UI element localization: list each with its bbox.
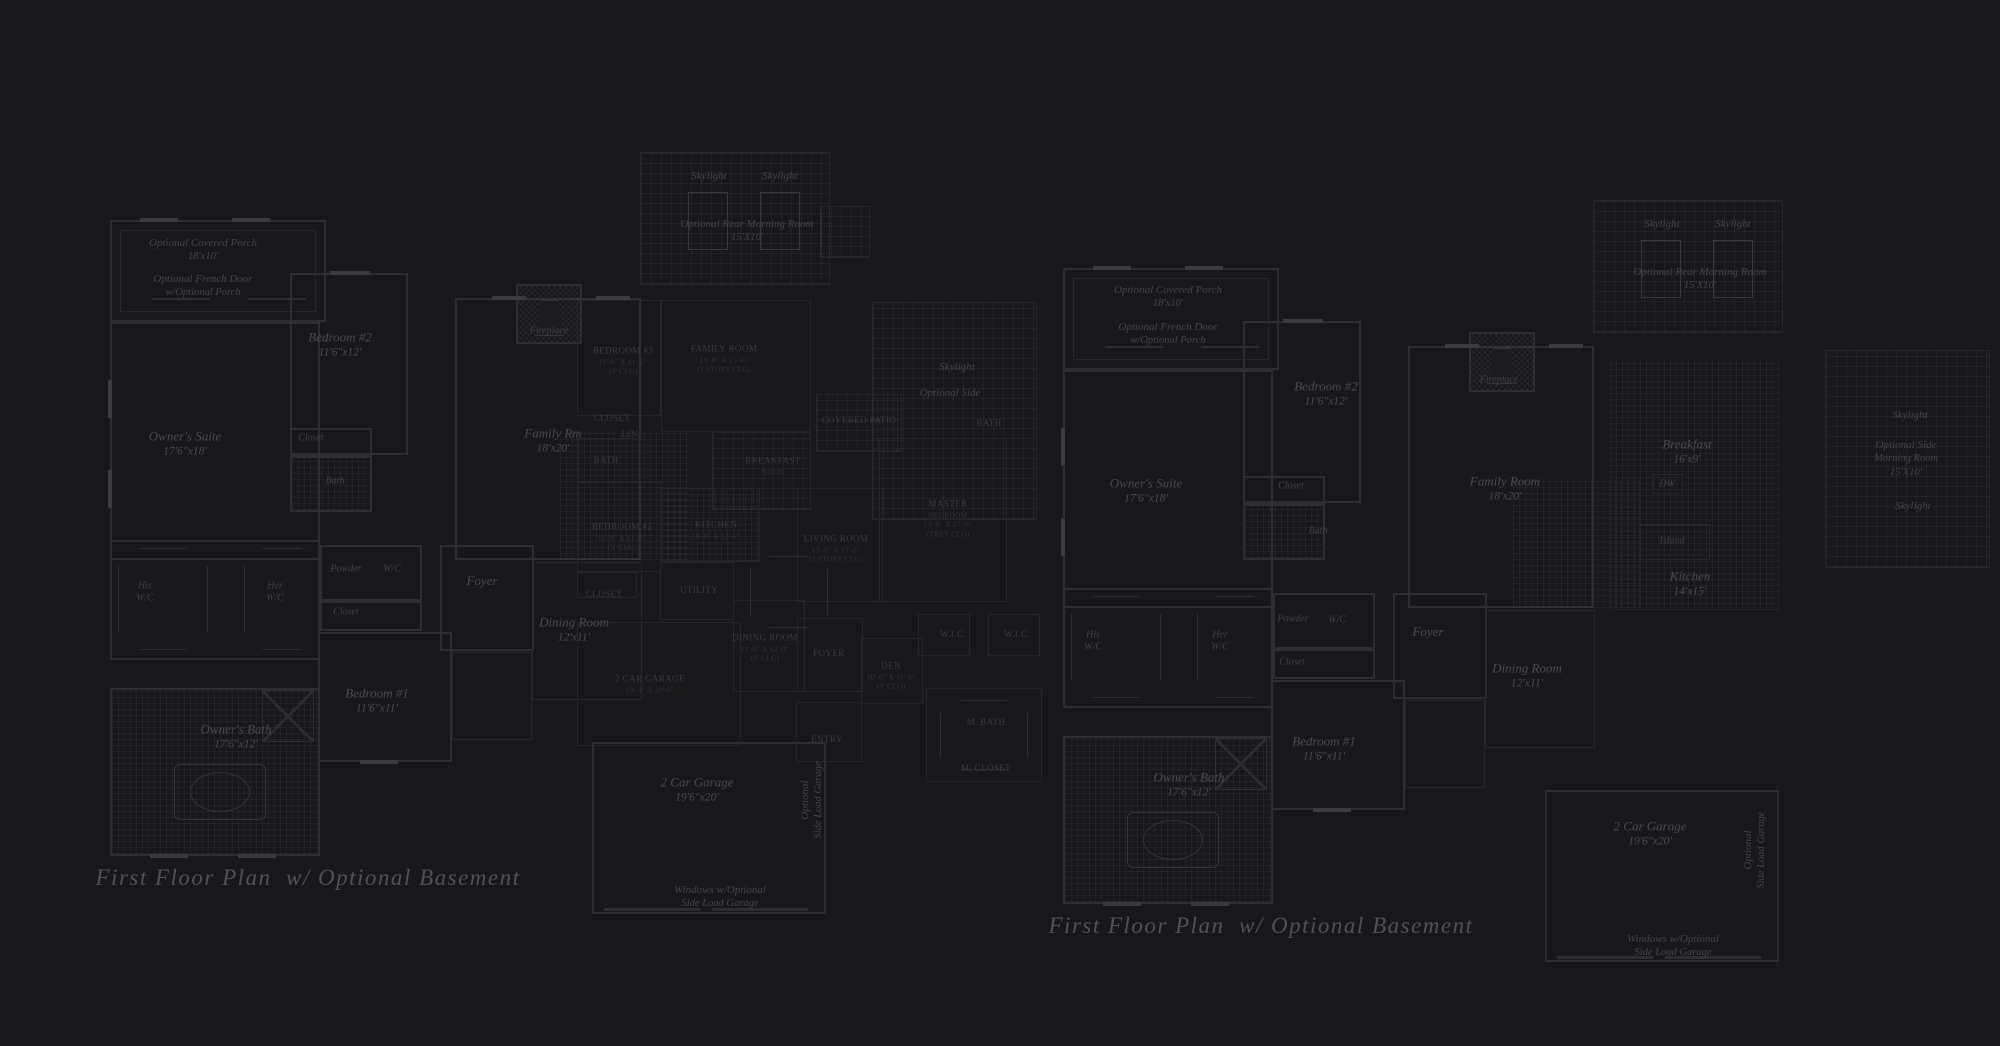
right-floor-plan-bedroom-2: Bedroom #211'6"x12' xyxy=(1294,379,1357,410)
right-floor-plan-her-wic: HerW/C xyxy=(1211,630,1229,653)
middle-floor-plan-bedroom-3: BEDROOM #311'-0" X 11'-6"(9' CLG) xyxy=(593,345,653,376)
middle-floor-plan-wic-left: W.I.C. xyxy=(940,629,966,641)
right-floor-plan-wic: W/C xyxy=(1328,614,1346,626)
right-floor-plan-foyer: Foyer xyxy=(1412,624,1443,640)
left-floor-plan-fireplace: Fireplace xyxy=(530,325,569,337)
blueprint-canvas: First Floor Plan w/ Optional Basement Fi… xyxy=(0,0,2000,1046)
right-floor-plan-skylight-side-top: Skylight xyxy=(1892,408,1927,422)
linework xyxy=(1103,902,1141,906)
right-floor-plan-fireplace: Fireplace xyxy=(1480,374,1519,386)
right-floor-plan-family-room: Family Room18'x20' xyxy=(1470,474,1540,505)
right-floor-plan-owners-bath: Owner's Bath17'6"x12' xyxy=(1153,770,1224,801)
left-plan-caption: First Floor Plan w/ Optional Basement xyxy=(96,865,521,891)
middle-floor-plan-foyer: FOYER xyxy=(813,648,845,660)
middle-floor-plan-living-room: LIVING ROOM13'-6" X 17'-6"(2 STORY CLG) xyxy=(804,533,869,564)
left-floor-plan-optional-covered-porch: Optional Covered Porch18'x10' xyxy=(149,236,257,264)
left-floor-plan-wic: W/C xyxy=(383,563,401,575)
left-floor-plan-closet-bedroom2: Closet xyxy=(298,432,324,444)
middle-floor-plan-kitchen: KITCHEN10'-0" X 12'-0" xyxy=(692,519,741,540)
right-floor-plan-closet-hall: Closet xyxy=(1279,656,1305,668)
left-floor-plan-optional-french-door: Optional French Doorw/Optional Porch xyxy=(153,272,252,300)
left-floor-plan-foyer: Foyer xyxy=(466,573,497,589)
left-floor-plan-skylight-side: Skylight xyxy=(939,360,974,374)
left-floor-plan-his-wic: HisW/C xyxy=(136,581,154,604)
linework xyxy=(1197,596,1273,698)
linework xyxy=(1143,820,1203,860)
right-floor-plan-owners-suite: Owner's Suite17'6"x18' xyxy=(1110,476,1182,507)
middle-floor-plan-garage: 2 CAR GARAGE19'-4" X 20'-0" xyxy=(615,673,685,694)
middle-floor-plan-closet-lower: CLOSET xyxy=(586,589,622,601)
left-floor-plan-her-wic: HerW/C xyxy=(266,581,284,604)
linework xyxy=(1393,593,1487,699)
linework xyxy=(1185,266,1223,270)
right-floor-plan-dw: DW xyxy=(1659,478,1675,490)
linework xyxy=(1061,428,1065,466)
left-floor-plan-bedroom-1: Bedroom #111'6"x11' xyxy=(345,686,408,717)
left-floor-plan-garage: 2 Car Garage19'6"x20' xyxy=(661,775,734,806)
right-floor-plan-bedroom-1: Bedroom #111'6"x11' xyxy=(1292,734,1355,765)
left-floor-plan-skylight-rear-right: Skylight xyxy=(762,169,797,183)
middle-floor-plan-dining-room: DINING ROOM11'-0" X 12'-0"(9' CLG) xyxy=(732,632,798,663)
right-floor-plan-bath-bedroom2: Bath xyxy=(1309,525,1328,537)
middle-floor-plan-breakfast-nook: BREAKFASTNOOK xyxy=(745,455,800,476)
left-floor-plan-bedroom-2: Bedroom #211'6"x12' xyxy=(308,330,371,361)
right-floor-plan-kitchen: Kitchen14'x15' xyxy=(1670,569,1710,600)
right-floor-plan-his-wic: HisW/C xyxy=(1084,630,1102,653)
right-plan-caption: First Floor Plan w/ Optional Basement xyxy=(1049,913,1474,939)
right-floor-plan-closet-bedroom2: Closet xyxy=(1278,480,1304,492)
right-floor-plan-breakfast: Breakfast16'x9' xyxy=(1662,437,1711,468)
left-floor-plan-closet-hall: Closet xyxy=(333,606,359,618)
middle-floor-plan-linen: LIN. xyxy=(622,429,641,441)
right-floor-plan-windows-w-optional: Windows w/OptionalSide Load Garage xyxy=(1627,932,1719,960)
right-floor-plan-skylight-rear-left: Skylight xyxy=(1644,217,1679,231)
right-floor-plan-optional-covered-porch: Optional Covered Porch18'x10' xyxy=(1114,283,1222,311)
linework xyxy=(1405,700,1485,788)
middle-floor-plan-den: DEN10'-0" X 11'-0"(9' CLG) xyxy=(867,660,915,691)
right-floor-plan-dining-room: Dining Room12'x11' xyxy=(1492,661,1562,692)
left-floor-plan-windows-w-optional: Windows w/OptionalSide Load Garage xyxy=(674,883,766,911)
right-floor-plan-skylight-side-bottom: Skylight xyxy=(1895,499,1930,513)
linework xyxy=(1283,319,1323,323)
left-floor-plan-powder: Powder xyxy=(330,563,361,575)
middle-floor-plan-bedroom-2: BEDROOM #211'-0" X 11'-0"(9' CLG) xyxy=(592,521,652,552)
middle-floor-plan-entry: ENTRY xyxy=(811,734,843,746)
right-floor-plan-skylight-rear-right: Skylight xyxy=(1715,217,1750,231)
linework xyxy=(1093,266,1131,270)
left-floor-plan-owners-bath: Owner's Bath17'6"x12' xyxy=(200,722,271,753)
right-floor-plan-powder: Powder xyxy=(1277,613,1308,625)
linework xyxy=(1061,518,1065,556)
left-floor-plan-bath-bedroom2: Bath xyxy=(326,475,345,487)
right-floor-plan-island: Island xyxy=(1660,535,1685,547)
middle-floor-plan-master-closet: M. CLOSET xyxy=(961,763,1011,775)
middle-floor-plan-utility: UTILITY xyxy=(680,585,718,597)
right-floor-plan-optional-side-morning-room: Optional SideMorning Room15'X10' xyxy=(1874,438,1938,480)
linework xyxy=(1549,344,1583,348)
middle-floor-plan-covered-patio: COVERED PATIO xyxy=(822,415,897,427)
left-floor-plan-optional-side-load-garage: OptionalSide Load Garage xyxy=(798,762,826,839)
right-floor-plan-optional-side-load-garage: OptionalSide Load Garage xyxy=(1741,812,1769,889)
left-floor-plan-optional-rear-morning-room: Optional Rear Morning Room15'X10' xyxy=(681,217,814,245)
left-floor-plan-skylight-rear-left: Skylight xyxy=(691,169,726,183)
right-floor-plan-optional-french-door: Optional French Doorw/Optional Porch xyxy=(1118,320,1217,348)
right-floor-plan-garage: 2 Car Garage19'6"x20' xyxy=(1614,819,1687,850)
left-floor-plan-family-room: Family Rm18'x20' xyxy=(524,426,581,457)
middle-floor-plan-pool-bath: BATH xyxy=(976,418,1001,430)
linework xyxy=(1445,344,1479,348)
middle-floor-plan-family-room: FAMILY ROOM19'-0" X 15'-6"(2 STORY CLG) xyxy=(691,343,757,374)
left-floor-plan-owners-suite: Owner's Suite17'6"x18' xyxy=(149,429,221,460)
middle-floor-plan-closet-upper: CLOSET xyxy=(594,413,630,425)
right-floor-plan-optional-rear-morning-room: Optional Rear Morning Room15'X10' xyxy=(1634,265,1767,293)
middle-floor-plan-wic-right: W.I.C. xyxy=(1004,629,1030,641)
left-floor-plan-dining-room: Dining Room12'x11' xyxy=(539,615,609,646)
left-floor-plan-optional-side-label: Optional Side xyxy=(920,386,981,400)
linework xyxy=(1313,808,1351,812)
middle-floor-plan-master-bath: M. BATH xyxy=(967,717,1006,729)
middle-floor-plan-bath-upper: BATH xyxy=(593,455,618,467)
middle-floor-plan-master-bedroom: MASTERBEDROOM13'-0" X 17'-0"(TREY CLG) xyxy=(924,499,973,540)
linework xyxy=(1191,902,1229,906)
